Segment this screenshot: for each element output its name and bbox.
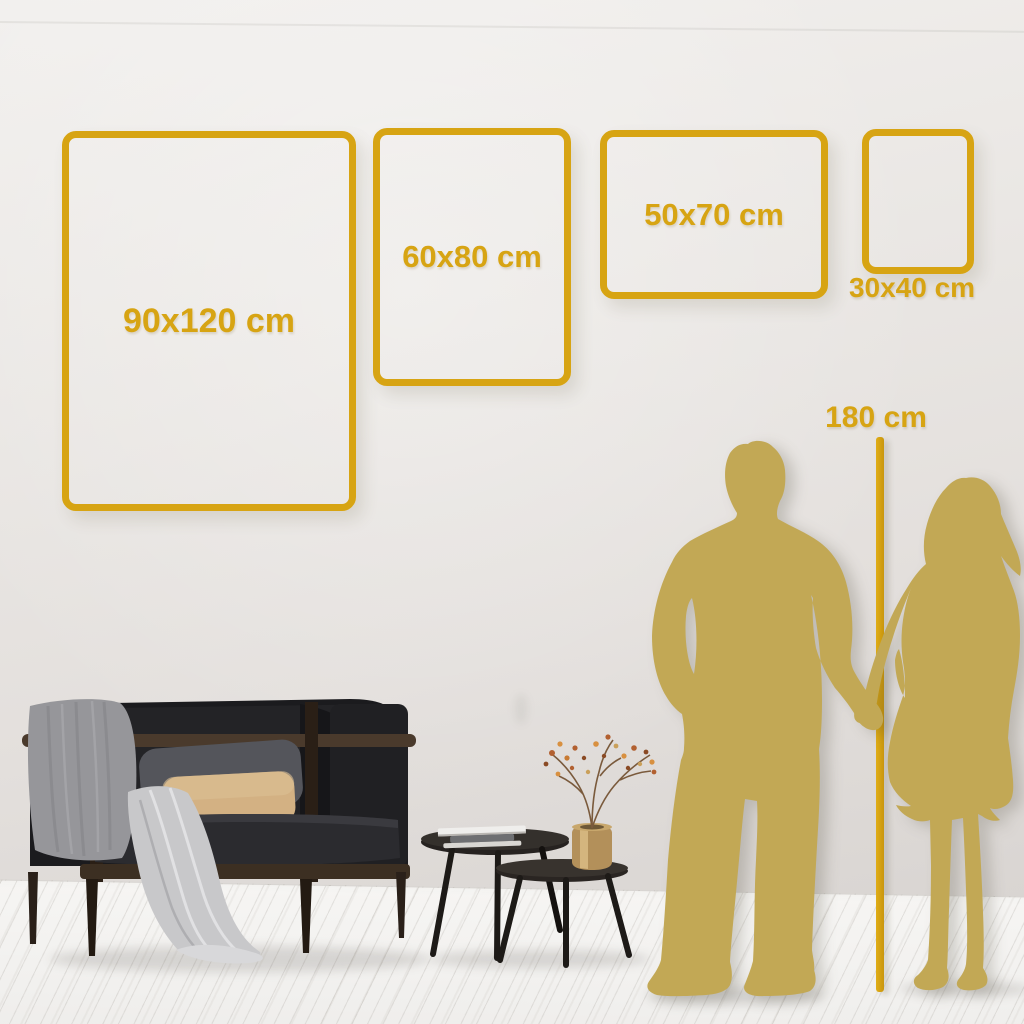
man-silhouette	[647, 441, 883, 996]
woman-silhouette	[854, 477, 1021, 990]
couple-silhouettes	[0, 0, 1024, 1024]
size-guide-scene: 90x120 cm 60x80 cm 50x70 cm 30x40 cm 180…	[0, 0, 1024, 1024]
